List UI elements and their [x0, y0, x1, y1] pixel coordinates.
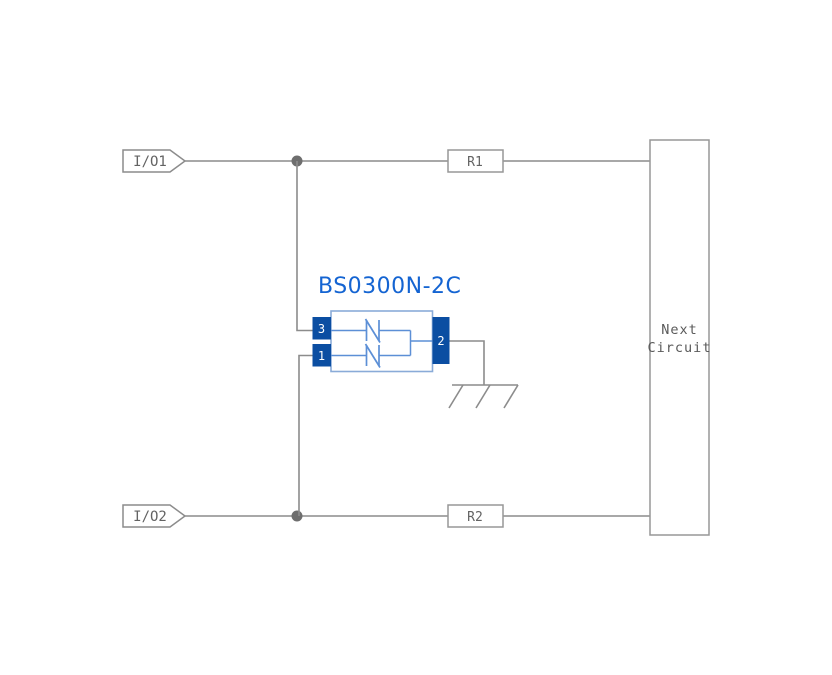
next-circuit-line1: Next: [661, 322, 698, 338]
io2-label: I/O2: [133, 509, 167, 525]
component-title: BS0300N-2C: [318, 274, 461, 299]
ground-hatch-2: [476, 385, 490, 408]
wire-pin2-to-ground: [450, 341, 485, 385]
pin2-number: 2: [437, 334, 444, 348]
circuit-diagram: I/O1 R1 I/O2 R2 BS0300N-2C: [0, 0, 832, 675]
next-circuit-block: Next Circuit: [648, 140, 712, 535]
io1-net: I/O1 R1: [123, 150, 650, 172]
junction-dot-bottom: [292, 511, 303, 522]
wire-junction-top-to-pin3: [297, 161, 313, 331]
r1-label: R1: [467, 155, 483, 170]
r2-label: R2: [467, 510, 483, 525]
stub-wires: [297, 161, 313, 516]
chassis-ground-icon: [449, 385, 518, 408]
io1-label: I/O1: [133, 154, 167, 170]
io2-net: I/O2 R2: [123, 505, 650, 527]
esd-component: BS0300N-2C: [313, 274, 462, 372]
ground-net: [449, 341, 518, 408]
schematic-canvas: I/O1 R1 I/O2 R2 BS0300N-2C: [0, 0, 832, 675]
wire-junction-bottom-to-pin1: [299, 356, 313, 517]
pin3-number: 3: [318, 322, 325, 336]
ground-hatch-1: [449, 385, 463, 408]
next-circuit-line2: Circuit: [648, 340, 712, 356]
ground-hatch-3: [504, 385, 518, 408]
pin1-number: 1: [318, 349, 325, 363]
